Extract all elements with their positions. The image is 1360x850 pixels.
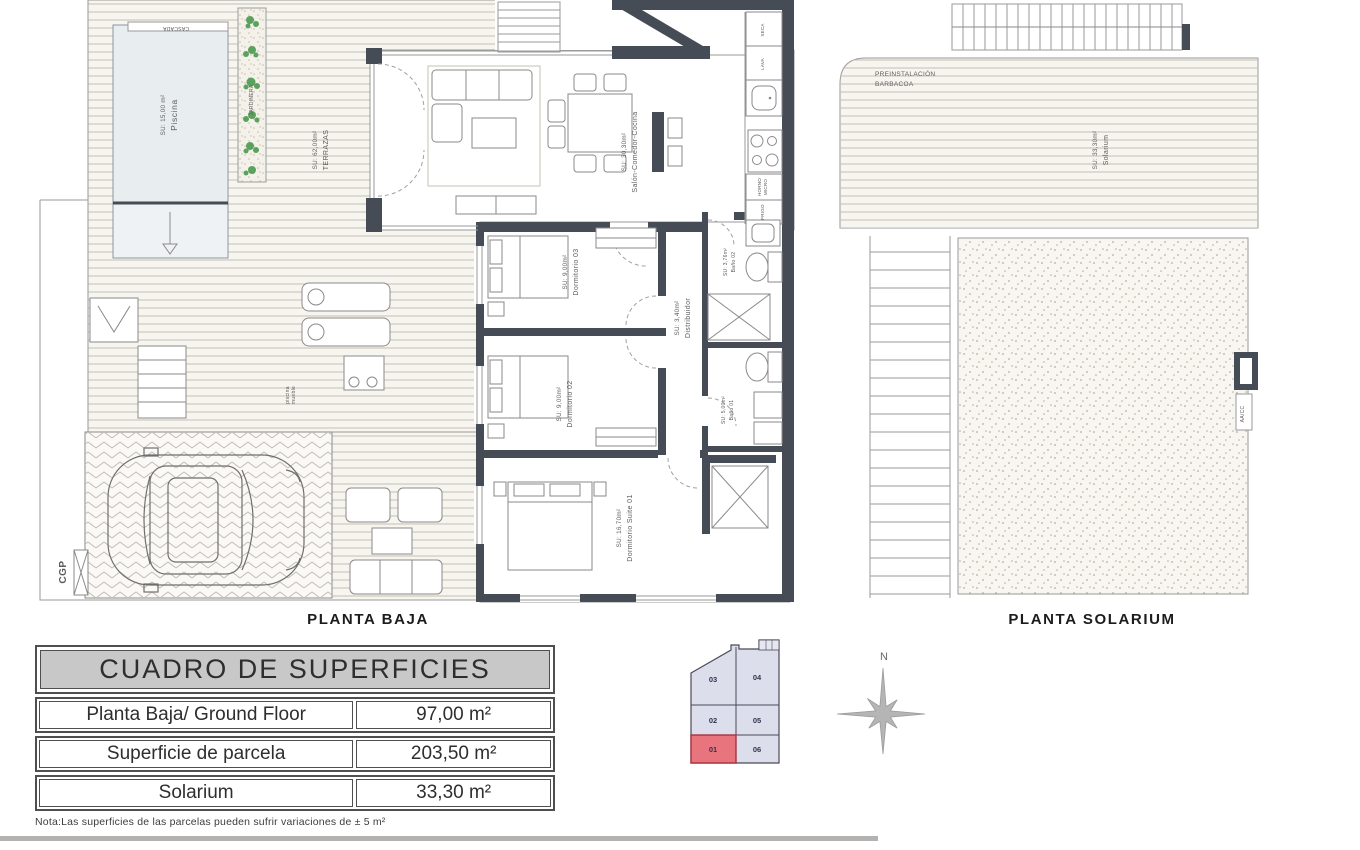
living-room-label: Salón-Comedor-Cocina: [632, 111, 639, 192]
pool-cabinet-label1: mueble: [291, 386, 297, 404]
living-room-area-label: SU: 30,30m²: [621, 133, 628, 172]
row-value: 33,30 m²: [356, 779, 551, 807]
micro-label: MICRO: [763, 179, 768, 196]
pool-label: Piscina: [169, 99, 179, 131]
bathroom-1-area-label: SU: 5,00m²: [721, 396, 727, 424]
plot-06-label: 06: [753, 745, 761, 754]
planter: JARDINERA: [238, 8, 266, 182]
site-plan: 03 04 02 05 01 06: [683, 633, 783, 783]
surface-table-title: CUADRO DE SUPERFICIES: [40, 650, 550, 689]
garage: CGP: [58, 432, 332, 598]
suite-bedroom: [494, 482, 606, 570]
suite-area-label: SU: 16,70m²: [616, 509, 623, 548]
row-label: Planta Baja/ Ground Floor: [39, 701, 353, 729]
plot-05-label: 05: [753, 716, 761, 725]
site-plan-annex: [759, 640, 779, 650]
north-arrow: [837, 668, 925, 754]
north-label: N: [880, 651, 888, 663]
ac-label: AA/CC: [1240, 406, 1246, 423]
table-note: Nota:Las superficies de las parcelas pue…: [35, 816, 555, 828]
planta-solarium-plan: PREINSTALACIÓN BARBACOA Solarium SU: 33,…: [830, 0, 1270, 632]
hallway-area-label: SU: 3,40m²: [674, 301, 681, 336]
washer-label: LAVA: [760, 57, 765, 70]
toilet: [746, 353, 768, 381]
row-label: Superficie de parcela: [39, 740, 353, 768]
drawing-sheet: CASCADA Piscina SU: 15,00 m² JARDINERA T…: [0, 0, 1360, 850]
terrace-label: TERRAZAS: [323, 130, 330, 171]
planta-solarium-title: PLANTA SOLARIUM: [1008, 611, 1175, 628]
plot-01-label: 01: [709, 745, 717, 754]
surface-table-header: CUADRO DE SUPERFICIES: [35, 645, 555, 694]
basin: [754, 392, 782, 418]
bedroom-3-area-label: SU: 9,00m²: [562, 255, 569, 290]
bedroom-2-area-label: SU: 9,00m²: [556, 387, 563, 422]
bathroom-2-label: Baño 02: [731, 252, 737, 273]
table-row: Solarium 33,30 m²: [35, 775, 555, 811]
suite-shower: [712, 466, 768, 528]
pool: CASCADA Piscina SU: 15,00 m²: [113, 22, 228, 258]
pergola-slats: [870, 236, 950, 598]
drain-box: [90, 298, 138, 342]
suite-label: Dormitorio Suite 01: [627, 494, 634, 562]
solarium-area-label: SU: 33,30m²: [1092, 131, 1099, 170]
solarium-deck: PREINSTALACIÓN BARBACOA Solarium SU: 33,…: [840, 58, 1258, 228]
bathroom-1-label: Baño 01: [729, 400, 735, 421]
solarium-stairs: [952, 4, 1190, 50]
solarium-label: Solarium: [1103, 135, 1110, 166]
dryer-label: SECA: [760, 23, 765, 37]
planta-baja-plan: CASCADA Piscina SU: 15,00 m² JARDINERA T…: [30, 0, 800, 632]
surface-table: CUADRO DE SUPERFICIES Planta Baja/ Groun…: [35, 645, 555, 828]
plot-02-label: 02: [709, 716, 717, 725]
oven-label: HORNO: [757, 178, 762, 196]
bbq-preinstall-label2: BARBACOA: [875, 81, 914, 88]
cgp-label: CGP: [58, 560, 69, 583]
bedroom-2-label: Dormitorio 02: [567, 380, 574, 427]
row-label: Solarium: [39, 779, 353, 807]
bedroom-3-label: Dormitorio 03: [573, 248, 580, 295]
exterior-stairs: [138, 346, 186, 418]
pool-cabinet-label2: piscina: [285, 386, 291, 404]
planter-label: JARDINERA: [249, 84, 255, 115]
planta-baja-title: PLANTA BAJA: [307, 611, 429, 628]
hallway-label: Distribuidor: [685, 298, 692, 338]
compass-rose: N: [833, 642, 933, 762]
footer-divider: [0, 836, 878, 841]
terrace-area-label: SU: 62,00m²: [312, 131, 319, 170]
cgp-box: [74, 550, 88, 595]
plot-03-label: 03: [709, 675, 717, 684]
pool-area-label: SU: 15,00 m²: [160, 95, 167, 136]
row-value: 203,50 m²: [356, 740, 551, 768]
plot-04-label: 04: [753, 673, 762, 682]
cascada-label: CASCADA: [163, 25, 190, 31]
bbq-preinstall-label1: PREINSTALACIÓN: [875, 69, 935, 78]
bathroom-2-area-label: SU: 3,76m²: [723, 248, 729, 276]
row-value: 97,00 m²: [356, 701, 551, 729]
gravel-roof: [958, 238, 1248, 594]
table-row: Superficie de parcela 203,50 m²: [35, 736, 555, 772]
fridge-label: FRIGO: [760, 204, 765, 220]
table-row: Planta Baja/ Ground Floor 97,00 m²: [35, 697, 555, 733]
kitchen-island: [652, 112, 664, 172]
interior-stairs: [498, 2, 560, 52]
toilet: [746, 253, 768, 281]
